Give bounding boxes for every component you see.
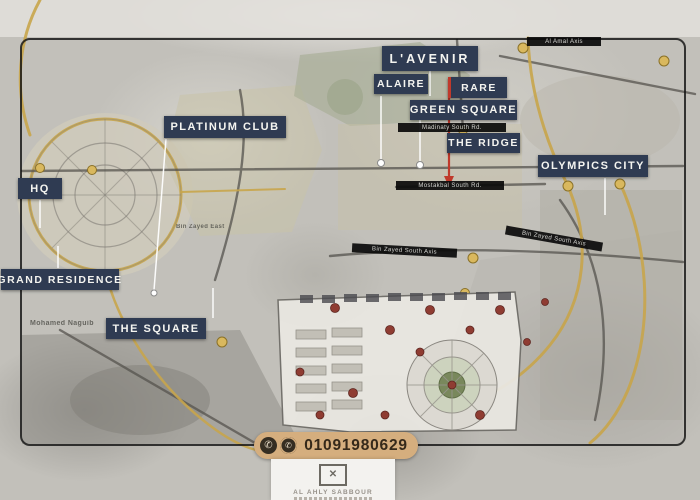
logo-mark-icon: ✕	[319, 464, 347, 486]
project-label-the-square: THE SQUARE	[106, 318, 206, 339]
developer-logo: ✕ AL AHLY SABBOUR	[271, 459, 395, 500]
masterplan-map-screenshot: L'AVENIR ALAIRE RARE GREEN SQUARE THE RI…	[0, 0, 700, 500]
project-label-lavenir: L'AVENIR	[382, 46, 478, 71]
project-label-the-ridge: THE RIDGE	[447, 133, 520, 153]
project-label-hq: HQ	[18, 178, 62, 199]
phone-number: 01091980629	[300, 437, 412, 455]
road-label-mohamed-naguib: Mohamed Naguib	[30, 320, 94, 327]
site-plan-rendering	[278, 292, 549, 432]
company-name: AL AHLY SABBOUR	[293, 489, 373, 496]
project-label-grand-residence: GRAND RESIDENCE	[1, 269, 119, 290]
road-label-bin-zayed-east: Bin Zayed East	[176, 224, 225, 230]
whatsapp-icon: ✆	[280, 437, 297, 454]
road-label-mostakbal-south-rd: Mostakbal South Rd.	[396, 181, 504, 190]
project-label-olympics-city: OLYMPICS CITY	[538, 155, 648, 177]
phone-icon: ✆	[260, 437, 277, 454]
map-top-band	[0, 0, 700, 37]
phone-contact-banner[interactable]: ✆ ✆ 01091980629	[254, 432, 418, 459]
road-label-al-amal-axis: Al Amal Axis	[527, 37, 601, 46]
project-label-rare: RARE	[448, 77, 507, 98]
project-label-green-square: GREEN SQUARE	[410, 100, 517, 120]
road-label-madinaty-south-rd: Madinaty South Rd.	[398, 123, 506, 132]
project-label-alaire: ALAIRE	[374, 74, 428, 94]
project-label-platinum-club: PLATINUM CLUB	[164, 116, 286, 138]
